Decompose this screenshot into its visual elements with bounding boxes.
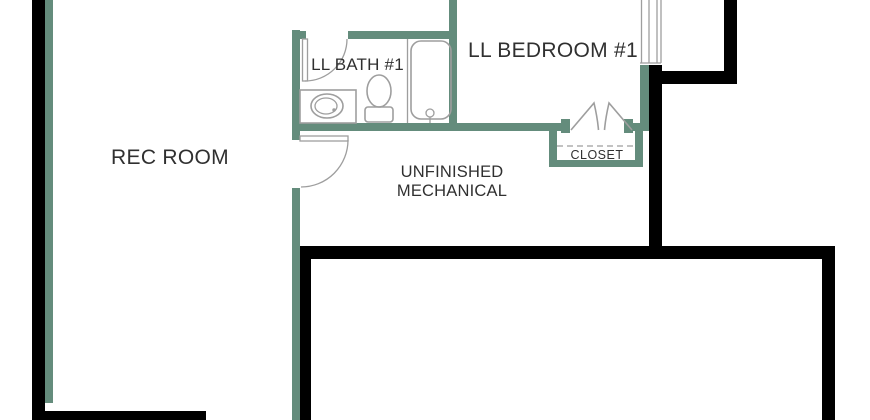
window-icon <box>640 0 661 63</box>
sink-vanity-icon <box>300 90 356 123</box>
bedroom-label: LL BEDROOM #1 <box>467 39 639 63</box>
toilet-icon <box>365 75 393 122</box>
closet-label: CLOSET <box>562 148 632 162</box>
bathroom-fixtures <box>300 39 451 123</box>
floor-plan-drawing <box>0 0 870 420</box>
bifold-door-icon <box>571 103 632 130</box>
mechanical-label-line1: UNFINISHED <box>377 163 527 182</box>
floor-plan: REC ROOM LL BATH #1 LL BEDROOM #1 UNFINI… <box>0 0 870 420</box>
mechanical-label: UNFINISHED MECHANICAL <box>377 163 527 200</box>
bath-label: LL BATH #1 <box>300 55 415 75</box>
mechanical-label-line2: MECHANICAL <box>377 182 527 201</box>
bathtub-icon <box>411 41 451 123</box>
rec-room-label: REC ROOM <box>105 146 235 170</box>
structural-walls <box>32 0 835 420</box>
mechanical-door-swing-icon <box>300 136 348 187</box>
